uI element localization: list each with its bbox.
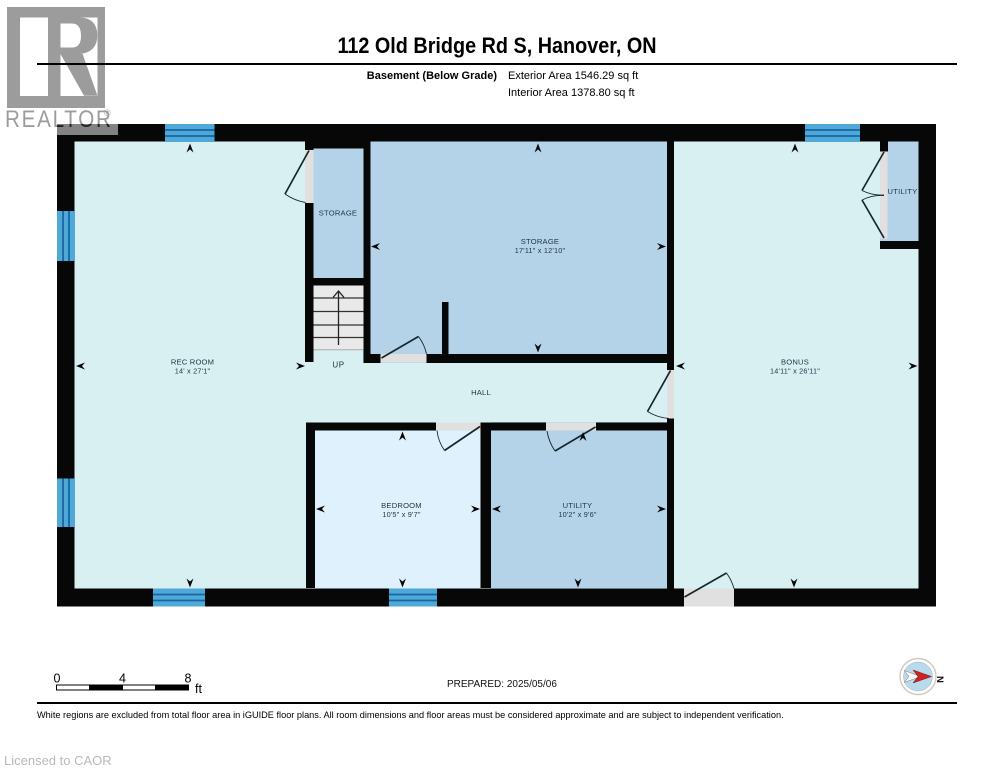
svg-text:0: 0 xyxy=(54,672,61,686)
svg-text:BEDROOM: BEDROOM xyxy=(381,501,422,510)
svg-text:4: 4 xyxy=(119,672,126,686)
svg-text:UP: UP xyxy=(332,361,344,370)
svg-text:14' x 27'1": 14' x 27'1" xyxy=(175,367,211,376)
svg-text:10'2" x 9'6": 10'2" x 9'6" xyxy=(558,510,597,519)
svg-text:14'11" x 26'11": 14'11" x 26'11" xyxy=(770,367,820,376)
svg-text:UTILITY: UTILITY xyxy=(563,501,593,510)
svg-text:UTILITY: UTILITY xyxy=(887,187,917,196)
svg-text:REALTOR: REALTOR xyxy=(5,106,113,133)
svg-text:®: ® xyxy=(104,108,111,118)
svg-text:8: 8 xyxy=(185,672,192,686)
svg-text:BONUS: BONUS xyxy=(781,358,809,367)
svg-text:HALL: HALL xyxy=(471,388,491,397)
svg-text:N: N xyxy=(934,676,945,683)
svg-text:STORAGE: STORAGE xyxy=(319,209,357,218)
svg-text:STORAGE: STORAGE xyxy=(521,237,559,246)
svg-text:17'11" x 12'10": 17'11" x 12'10" xyxy=(515,246,566,255)
svg-text:REC ROOM: REC ROOM xyxy=(171,358,214,367)
svg-text:ft: ft xyxy=(195,682,202,696)
svg-text:10'5" x 9'7": 10'5" x 9'7" xyxy=(382,510,421,519)
